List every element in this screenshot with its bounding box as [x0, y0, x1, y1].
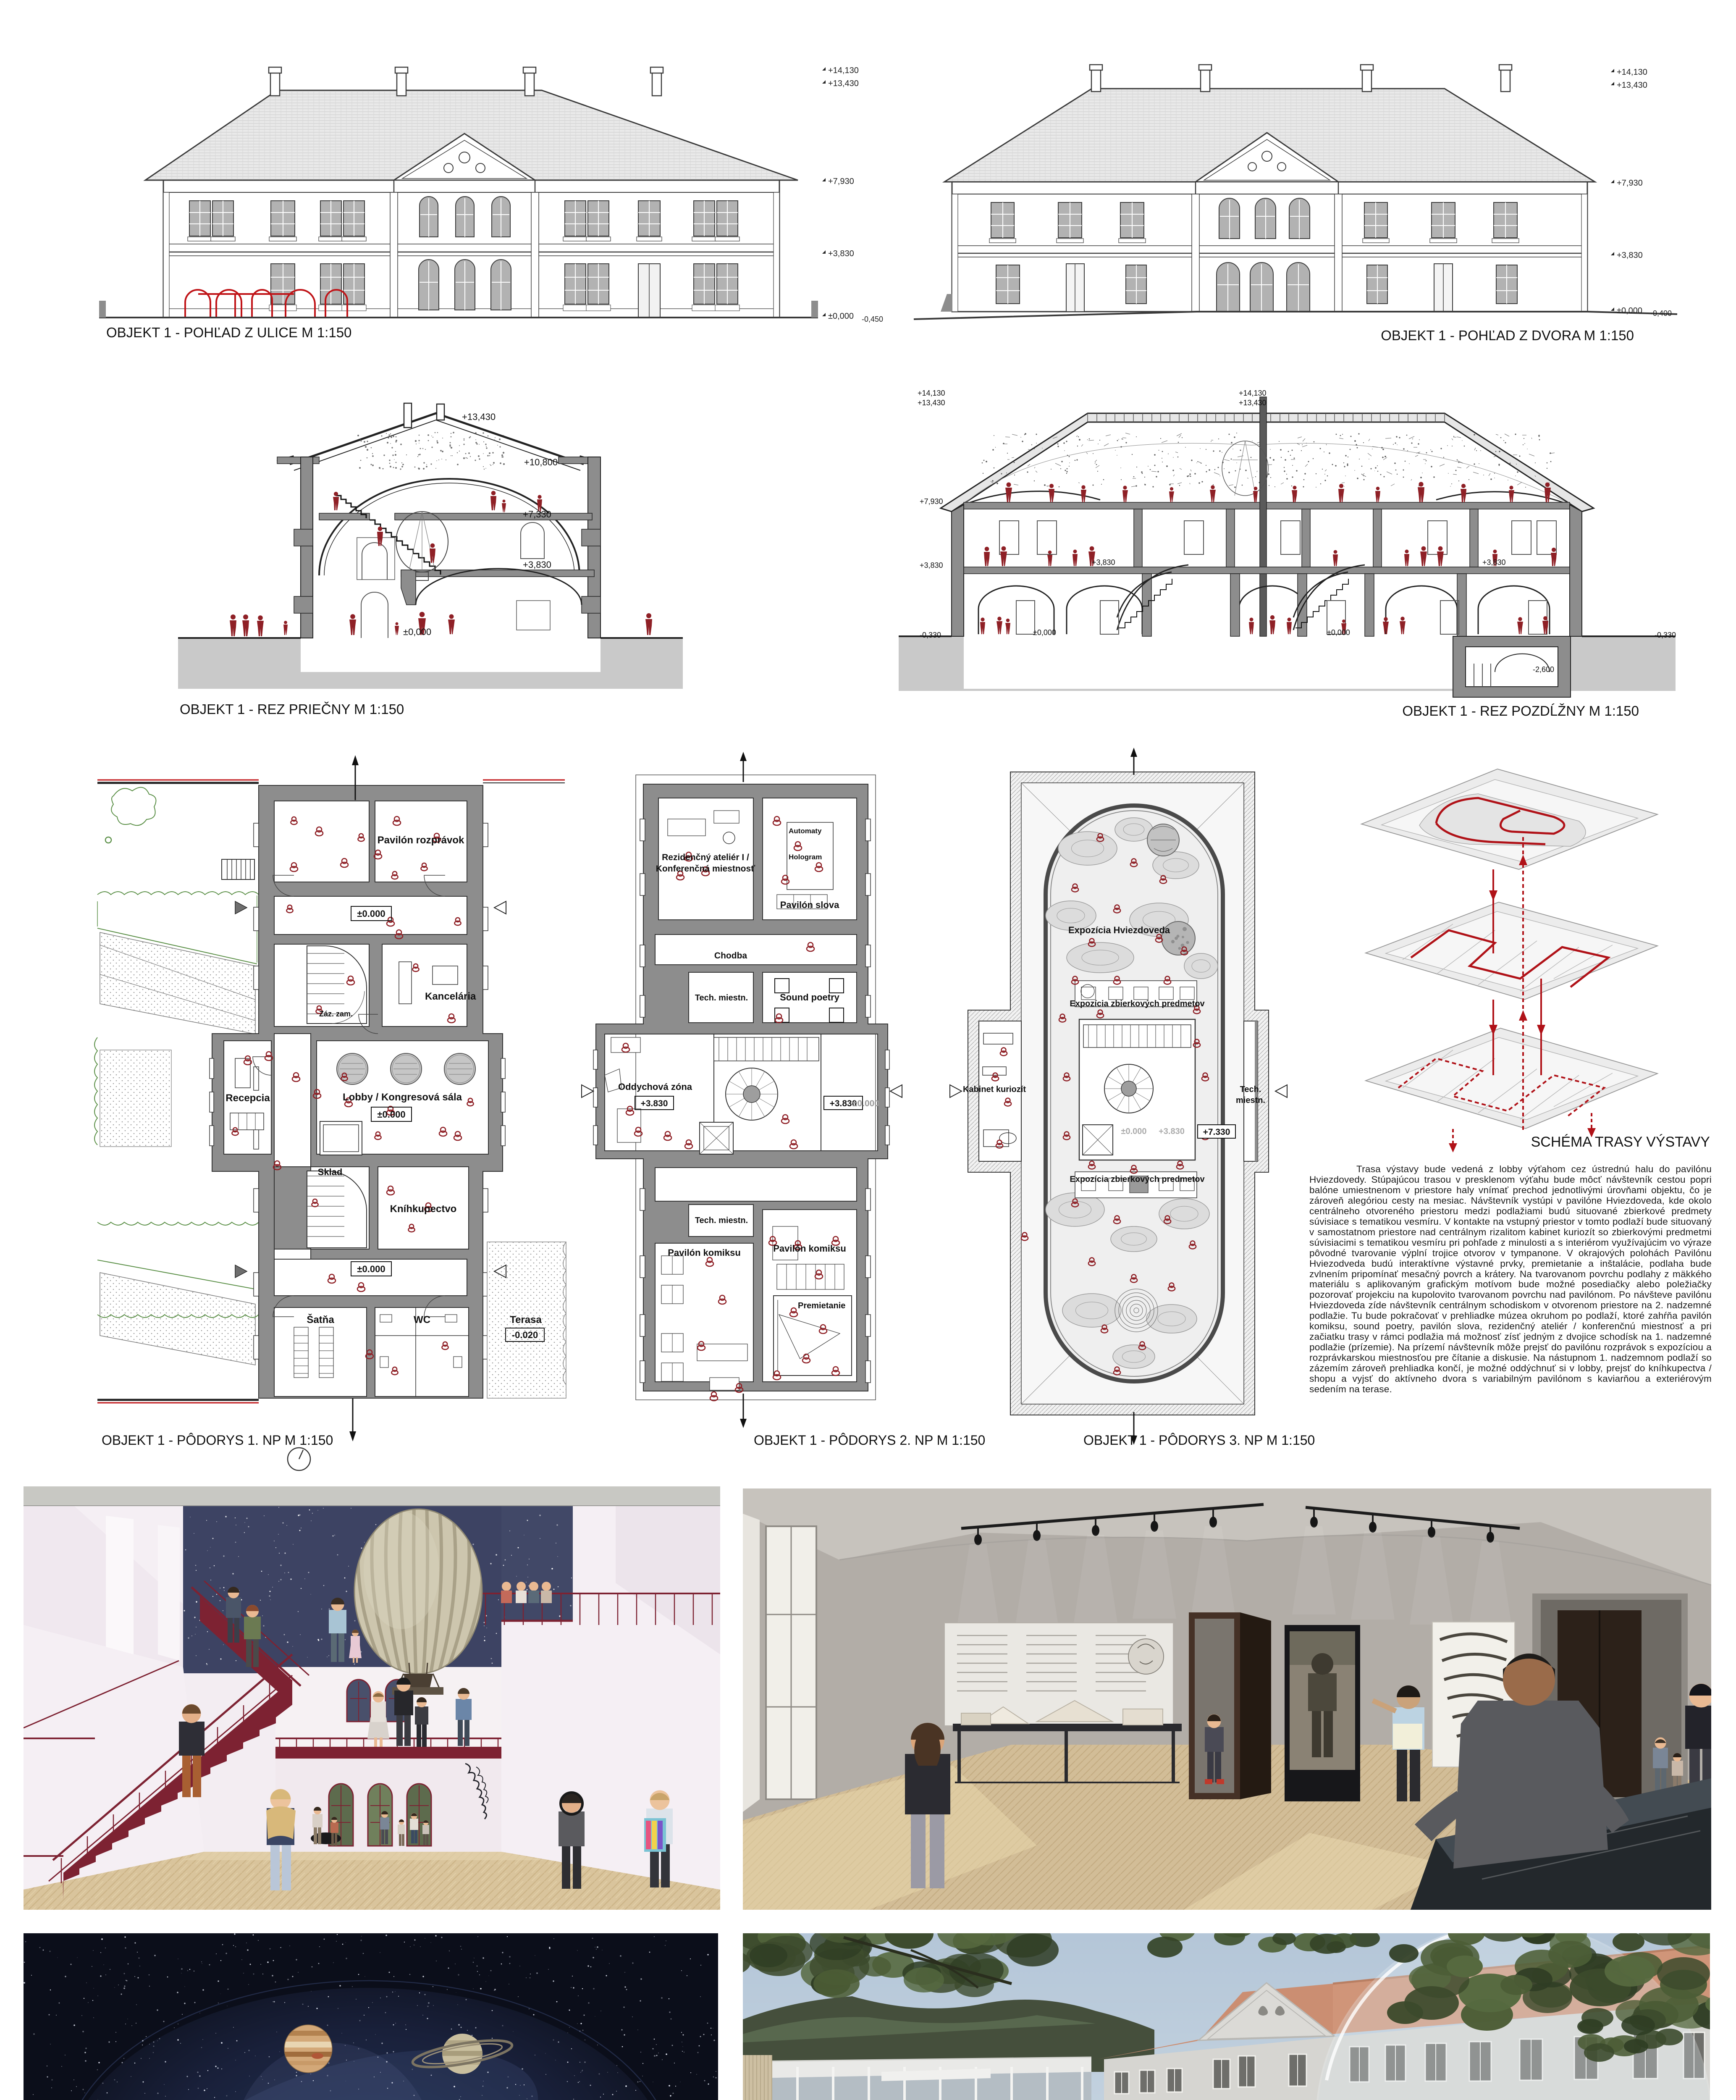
- svg-text:Pavilón komiksu: Pavilón komiksu: [773, 1243, 846, 1254]
- svg-text:WC: WC: [414, 1314, 430, 1326]
- svg-text:Kabinet kuriozít: Kabinet kuriozít: [963, 1085, 1026, 1094]
- svg-text:+14,130: +14,130: [828, 66, 859, 75]
- svg-text:+3,830: +3,830: [1617, 251, 1643, 260]
- svg-text:Tech. miestn.: Tech. miestn.: [695, 1216, 748, 1225]
- svg-text:-2,600: -2,600: [1533, 665, 1554, 674]
- svg-text:OBJEKT 1 - POHĽAD Z ULICE M: OBJEKT 1 - POHĽAD Z ULICE M 1:150: [106, 325, 351, 340]
- svg-text:±0,000: ±0,000: [1033, 628, 1056, 637]
- svg-text:-0,400: -0,400: [1650, 309, 1672, 318]
- svg-text:+14,130: +14,130: [1617, 68, 1647, 77]
- svg-text:+10,800: +10,800: [524, 457, 558, 467]
- svg-text:Pavilón slova: Pavilón slova: [780, 900, 839, 910]
- svg-text:OBJEKT 1 - REZ POZDĹŽNY M 1:: OBJEKT 1 - REZ POZDĹŽNY M 1:150: [1402, 703, 1639, 719]
- svg-text:Tech. miestn.: Tech. miestn.: [695, 993, 748, 1003]
- svg-text:-0.020: -0.020: [512, 1330, 538, 1340]
- svg-text:Expozícia Hviezdoveda: Expozícia Hviezdoveda: [1068, 925, 1170, 935]
- svg-text:Recepcia: Recepcia: [226, 1092, 270, 1104]
- svg-text:Šatňa: Šatňa: [307, 1314, 334, 1326]
- svg-text:Rezidenčný ateliér I /: Rezidenčný ateliér I /: [662, 853, 749, 862]
- svg-text:OBJEKT 1 - REZ PRIEČNY M 1:1: OBJEKT 1 - REZ PRIEČNY M 1:150: [180, 701, 404, 717]
- svg-text:Tech.: Tech.: [1240, 1085, 1261, 1094]
- svg-text:+13,430: +13,430: [1239, 399, 1267, 407]
- svg-text:±0.000: ±0.000: [377, 1109, 405, 1120]
- svg-text:-0,450: -0,450: [862, 315, 883, 323]
- svg-text:+13,430: +13,430: [828, 79, 859, 88]
- svg-text:±0.000: ±0.000: [852, 1099, 879, 1108]
- svg-text:+14,130: +14,130: [1239, 389, 1267, 397]
- svg-text:OBJEKT 1 - POHĽAD Z DVORA M: OBJEKT 1 - POHĽAD Z DVORA M 1:150: [1381, 328, 1634, 343]
- svg-text:+3,830: +3,830: [920, 561, 943, 570]
- svg-text:-0,330: -0,330: [1655, 631, 1676, 639]
- svg-text:±0,000: ±0,000: [1617, 306, 1642, 315]
- svg-text:±0,000: ±0,000: [1327, 628, 1350, 637]
- svg-text:+3,830: +3,830: [1092, 558, 1115, 567]
- svg-text:Kníhkupectvo: Kníhkupectvo: [390, 1203, 457, 1215]
- svg-text:Konferenčná miestnosť: Konferenčná miestnosť: [656, 864, 755, 874]
- svg-text:±0,000: ±0,000: [828, 312, 854, 321]
- svg-text:Oddychová zóna: Oddychová zóna: [618, 1081, 692, 1092]
- svg-text:Sound poetry: Sound poetry: [780, 992, 840, 1003]
- svg-text:Pavilón rozprávok: Pavilón rozprávok: [378, 835, 464, 846]
- svg-text:+7,930: +7,930: [1617, 178, 1643, 188]
- svg-text:+13,430: +13,430: [1617, 81, 1647, 90]
- svg-text:Expozícia zbierkových predmeto: Expozícia zbierkových predmetov: [1070, 999, 1205, 1008]
- svg-text:miestn.: miestn.: [1236, 1096, 1265, 1105]
- svg-text:SCHÉMA TRASY VÝSTAVY: SCHÉMA TRASY VÝSTAVY: [1531, 1134, 1710, 1150]
- svg-text:+7,930: +7,930: [920, 497, 943, 506]
- svg-text:+3,830: +3,830: [1482, 558, 1506, 567]
- svg-text:Expozícia zbierkových predmeto: Expozícia zbierkových predmetov: [1070, 1175, 1205, 1184]
- svg-text:±0.000: ±0.000: [1121, 1127, 1146, 1136]
- svg-text:±0.000: ±0.000: [357, 1264, 385, 1274]
- svg-text:+7,930: +7,930: [828, 177, 854, 186]
- svg-text:-0,330: -0,330: [920, 631, 941, 639]
- svg-text:±0,000: ±0,000: [403, 627, 431, 637]
- svg-text:Terasa: Terasa: [510, 1314, 542, 1326]
- svg-text:+3,830: +3,830: [523, 559, 551, 570]
- svg-text:+13,430: +13,430: [918, 399, 945, 407]
- svg-text:Chodba: Chodba: [714, 951, 747, 961]
- svg-text:Premietanie: Premietanie: [798, 1301, 845, 1310]
- svg-text:Záz. zam.: Záz. zam.: [319, 1010, 353, 1018]
- svg-text:+3,830: +3,830: [828, 249, 854, 258]
- svg-text:Kancelária: Kancelária: [425, 991, 476, 1002]
- svg-text:Hologram: Hologram: [789, 853, 822, 861]
- svg-text:+7.330: +7.330: [1203, 1127, 1230, 1137]
- svg-text:+7,330: +7,330: [523, 509, 551, 520]
- svg-text:Lobby / Kongresová sála: Lobby / Kongresová sála: [343, 1092, 462, 1103]
- svg-text:+3.830: +3.830: [1159, 1127, 1185, 1136]
- svg-text:+14,130: +14,130: [918, 389, 945, 397]
- svg-text:+3.830: +3.830: [641, 1099, 668, 1108]
- svg-text:Automaty: Automaty: [789, 827, 822, 835]
- svg-text:OBJEKT 1 - PÔDORYS 3. NP M 1: OBJEKT 1 - PÔDORYS 3. NP M 1:150: [1083, 1433, 1315, 1448]
- svg-text:+13,430: +13,430: [462, 412, 496, 422]
- svg-text:Sklad: Sklad: [318, 1167, 343, 1177]
- svg-text:OBJEKT 1 - PÔDORYS 1. NP M 1: OBJEKT 1 - PÔDORYS 1. NP M 1:150: [102, 1433, 333, 1448]
- svg-text:OBJEKT 1 - PÔDORYS 2. NP M 1: OBJEKT 1 - PÔDORYS 2. NP M 1:150: [754, 1433, 985, 1448]
- svg-text:Pavilón komiksu: Pavilón komiksu: [668, 1247, 741, 1258]
- svg-text:±0.000: ±0.000: [357, 908, 385, 919]
